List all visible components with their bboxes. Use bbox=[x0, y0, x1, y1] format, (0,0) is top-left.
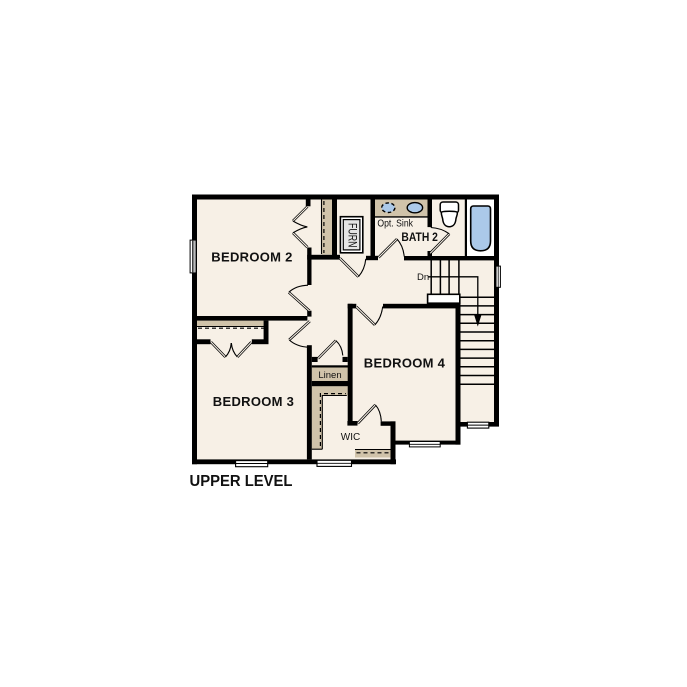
svg-text:FURN: FURN bbox=[346, 223, 360, 248]
svg-text:BEDROOM 3: BEDROOM 3 bbox=[213, 394, 294, 409]
svg-text:BEDROOM 2: BEDROOM 2 bbox=[211, 250, 292, 265]
svg-text:BEDROOM 4: BEDROOM 4 bbox=[364, 355, 446, 370]
svg-text:BATH 2: BATH 2 bbox=[401, 232, 438, 244]
svg-text:Opt. Sink: Opt. Sink bbox=[377, 219, 413, 230]
svg-text:WIC: WIC bbox=[341, 432, 360, 443]
svg-text:UPPER LEVEL: UPPER LEVEL bbox=[190, 473, 293, 490]
svg-text:Linen: Linen bbox=[318, 370, 341, 381]
svg-text:Dn: Dn bbox=[417, 272, 429, 283]
